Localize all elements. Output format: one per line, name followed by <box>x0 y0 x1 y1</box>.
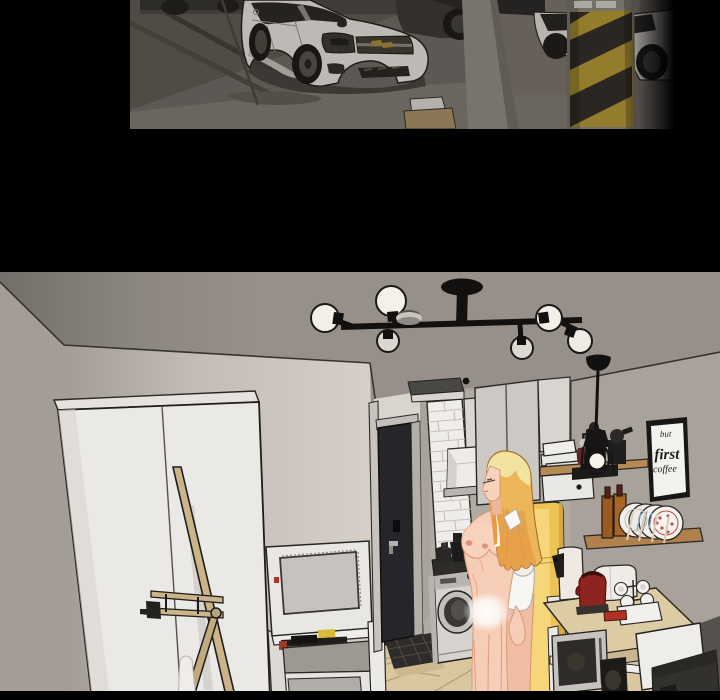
svg-text:but: but <box>660 429 672 439</box>
svg-text:first: first <box>654 447 680 464</box>
svg-text:coffee: coffee <box>653 464 678 476</box>
